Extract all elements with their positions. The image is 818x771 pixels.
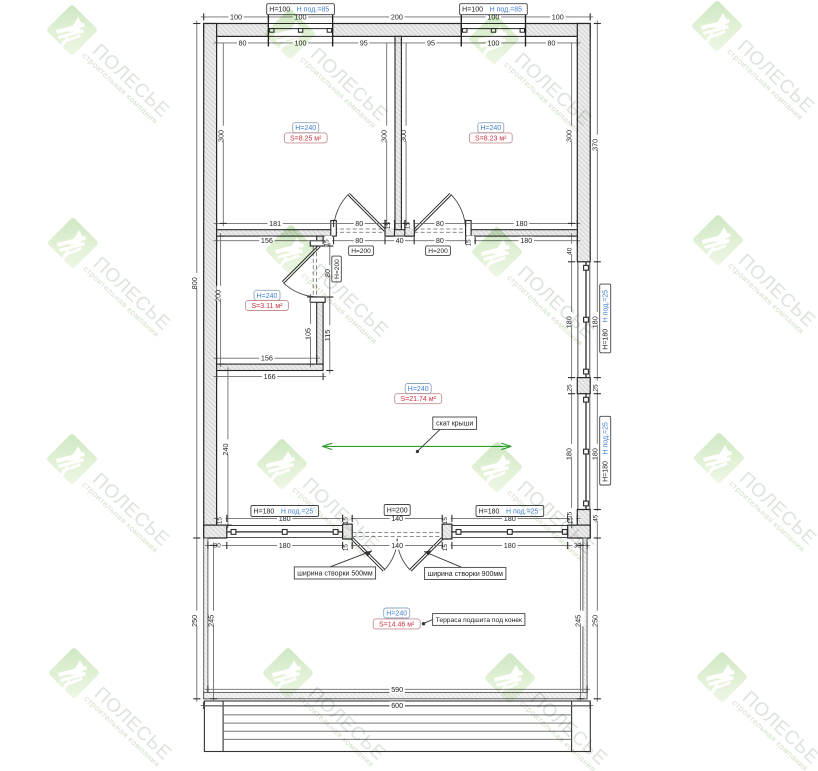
svg-text:180: 180 bbox=[565, 448, 574, 460]
svg-text:200: 200 bbox=[391, 12, 403, 21]
svg-text:H=100: H=100 bbox=[462, 7, 483, 14]
svg-text:15: 15 bbox=[442, 544, 449, 552]
svg-text:ширина створки 900мм: ширина створки 900мм bbox=[428, 571, 504, 578]
svg-text:180: 180 bbox=[504, 541, 516, 550]
svg-text:105: 105 bbox=[304, 328, 313, 340]
svg-text:H=180: H=180 bbox=[479, 509, 500, 516]
svg-text:200: 200 bbox=[214, 290, 223, 302]
svg-text:100: 100 bbox=[230, 12, 242, 21]
svg-text:H=240: H=240 bbox=[257, 293, 278, 300]
svg-text:S=14.46 м²: S=14.46 м² bbox=[379, 621, 415, 628]
svg-text:300: 300 bbox=[380, 130, 389, 142]
svg-text:Н под.=25: Н под.=25 bbox=[603, 422, 610, 455]
svg-text:140: 140 bbox=[391, 541, 403, 550]
svg-text:H=180: H=180 bbox=[253, 509, 274, 516]
svg-text:80: 80 bbox=[355, 236, 363, 245]
svg-text:40: 40 bbox=[396, 236, 404, 245]
svg-text:95: 95 bbox=[360, 38, 368, 47]
svg-text:156: 156 bbox=[261, 354, 273, 363]
svg-text:300: 300 bbox=[216, 130, 225, 142]
svg-text:80: 80 bbox=[436, 219, 444, 228]
svg-text:H=240: H=240 bbox=[480, 125, 501, 132]
svg-text:Н под.=25: Н под.=25 bbox=[603, 290, 610, 323]
svg-text:370: 370 bbox=[590, 139, 599, 151]
svg-text:300: 300 bbox=[399, 130, 408, 142]
svg-text:590: 590 bbox=[391, 685, 403, 694]
svg-text:45: 45 bbox=[592, 514, 599, 522]
svg-text:Терраса подшита под конек: Терраса подшита под конек bbox=[436, 617, 522, 624]
svg-text:ширина створки 500мм: ширина створки 500мм bbox=[297, 570, 373, 577]
svg-text:166: 166 bbox=[264, 372, 276, 381]
svg-text:100: 100 bbox=[552, 12, 564, 21]
svg-text:115: 115 bbox=[323, 330, 332, 341]
svg-text:H=240: H=240 bbox=[408, 386, 429, 393]
svg-text:15: 15 bbox=[217, 517, 224, 525]
svg-text:H=240: H=240 bbox=[295, 125, 316, 132]
svg-text:300: 300 bbox=[565, 130, 574, 142]
svg-text:245: 245 bbox=[207, 615, 216, 627]
svg-text:250: 250 bbox=[190, 615, 199, 627]
svg-text:Н под.=85: Н под.=85 bbox=[297, 7, 330, 14]
svg-text:95: 95 bbox=[427, 38, 435, 47]
svg-text:240: 240 bbox=[221, 444, 230, 456]
svg-text:H=200: H=200 bbox=[387, 508, 408, 515]
svg-text:скат крыши: скат крыши bbox=[436, 421, 473, 428]
svg-text:H=240: H=240 bbox=[386, 611, 407, 618]
svg-text:H=180: H=180 bbox=[603, 329, 610, 350]
svg-text:180: 180 bbox=[590, 448, 599, 460]
svg-text:15: 15 bbox=[442, 517, 449, 525]
svg-text:40: 40 bbox=[567, 247, 574, 255]
svg-text:S=3.11 м²: S=3.11 м² bbox=[252, 303, 284, 310]
svg-text:80: 80 bbox=[547, 38, 555, 47]
svg-text:S=21.74 м²: S=21.74 м² bbox=[401, 396, 437, 403]
svg-text:15: 15 bbox=[465, 239, 472, 247]
svg-text:25: 25 bbox=[592, 384, 599, 392]
svg-text:245: 245 bbox=[573, 615, 582, 627]
svg-text:H=200: H=200 bbox=[428, 248, 448, 255]
svg-text:H=180: H=180 bbox=[603, 461, 610, 482]
svg-text:H=200: H=200 bbox=[351, 248, 371, 255]
svg-text:180: 180 bbox=[279, 541, 291, 550]
svg-text:S=8.23 м²: S=8.23 м² bbox=[475, 135, 507, 142]
svg-text:25: 25 bbox=[567, 384, 574, 392]
svg-text:180: 180 bbox=[520, 236, 532, 245]
svg-text:Н под.=85: Н под.=85 bbox=[490, 7, 523, 14]
svg-text:600: 600 bbox=[391, 701, 403, 710]
svg-text:80: 80 bbox=[239, 38, 247, 47]
svg-text:181: 181 bbox=[269, 219, 281, 228]
svg-text:250: 250 bbox=[590, 615, 599, 627]
svg-text:S=8.25 м²: S=8.25 м² bbox=[290, 135, 322, 142]
svg-text:180: 180 bbox=[516, 219, 528, 228]
svg-text:30: 30 bbox=[214, 543, 222, 550]
svg-text:Н под.=25: Н под.=25 bbox=[281, 509, 314, 516]
svg-text:800: 800 bbox=[190, 277, 199, 289]
svg-text:80: 80 bbox=[436, 236, 444, 245]
svg-text:80: 80 bbox=[355, 219, 363, 228]
